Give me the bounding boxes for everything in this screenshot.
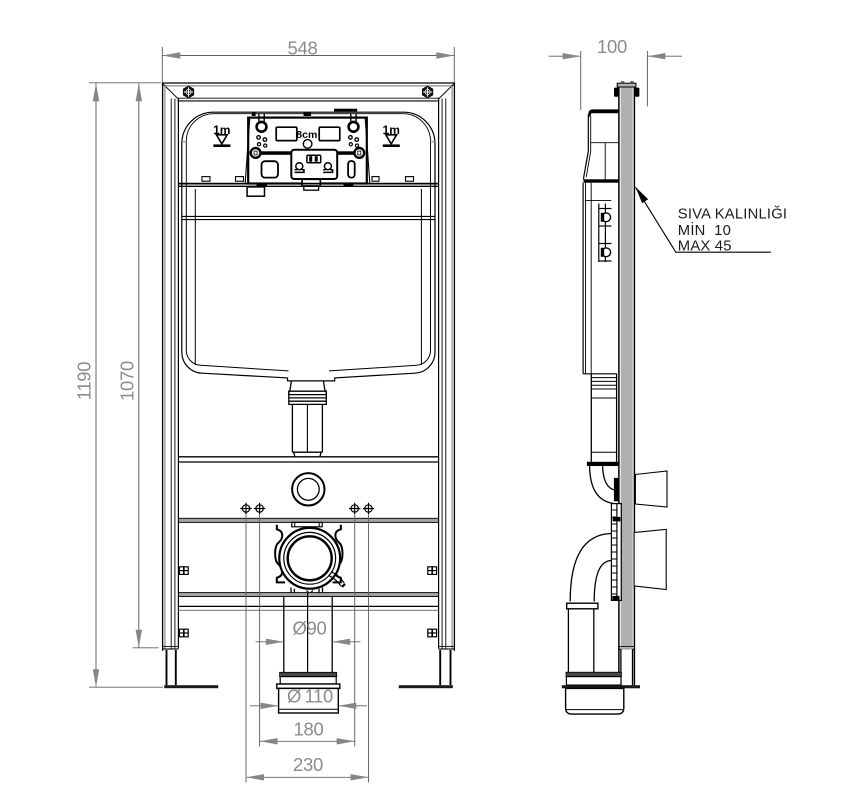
svg-text:180: 180: [294, 719, 324, 740]
svg-text:100: 100: [597, 36, 627, 57]
svg-text:Ø 110: Ø 110: [287, 685, 333, 706]
svg-text:Ø90: Ø90: [292, 618, 326, 639]
svg-text:230: 230: [293, 754, 323, 775]
svg-text:1070: 1070: [117, 361, 138, 401]
svg-text:548: 548: [288, 38, 318, 59]
svg-text:1190: 1190: [74, 362, 95, 401]
svg-text:MİN 10: MİN 10: [678, 221, 731, 239]
svg-text:SIVA KALINLIĞI: SIVA KALINLIĞI: [678, 206, 787, 223]
svg-text:MAX 45: MAX 45: [678, 239, 732, 255]
